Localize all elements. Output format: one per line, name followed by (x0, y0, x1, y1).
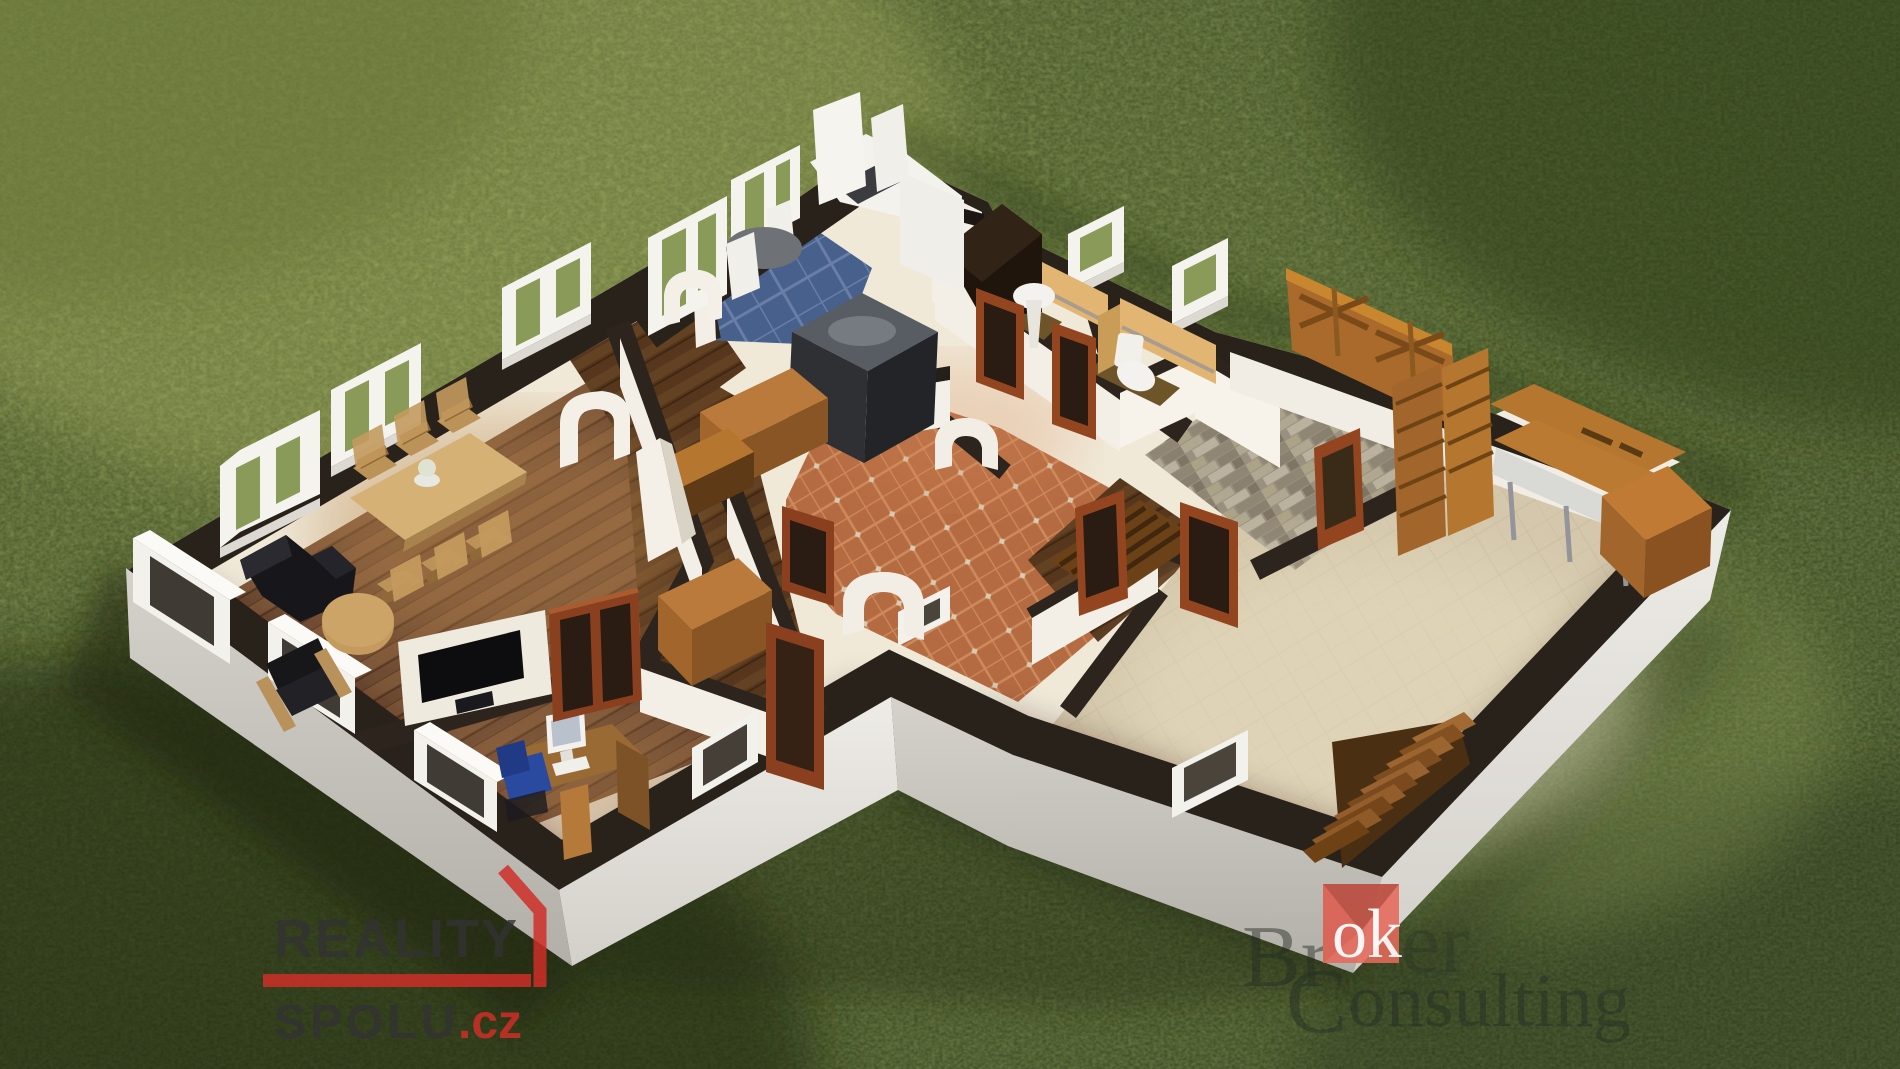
svg-text:.cz: .cz (458, 996, 522, 1049)
svg-text:onsulting: onsulting (1348, 959, 1631, 1043)
svg-text:C: C (1286, 950, 1347, 1052)
svg-text:REALITY: REALITY (274, 909, 519, 969)
svg-text:SPOLU: SPOLU (274, 996, 459, 1049)
